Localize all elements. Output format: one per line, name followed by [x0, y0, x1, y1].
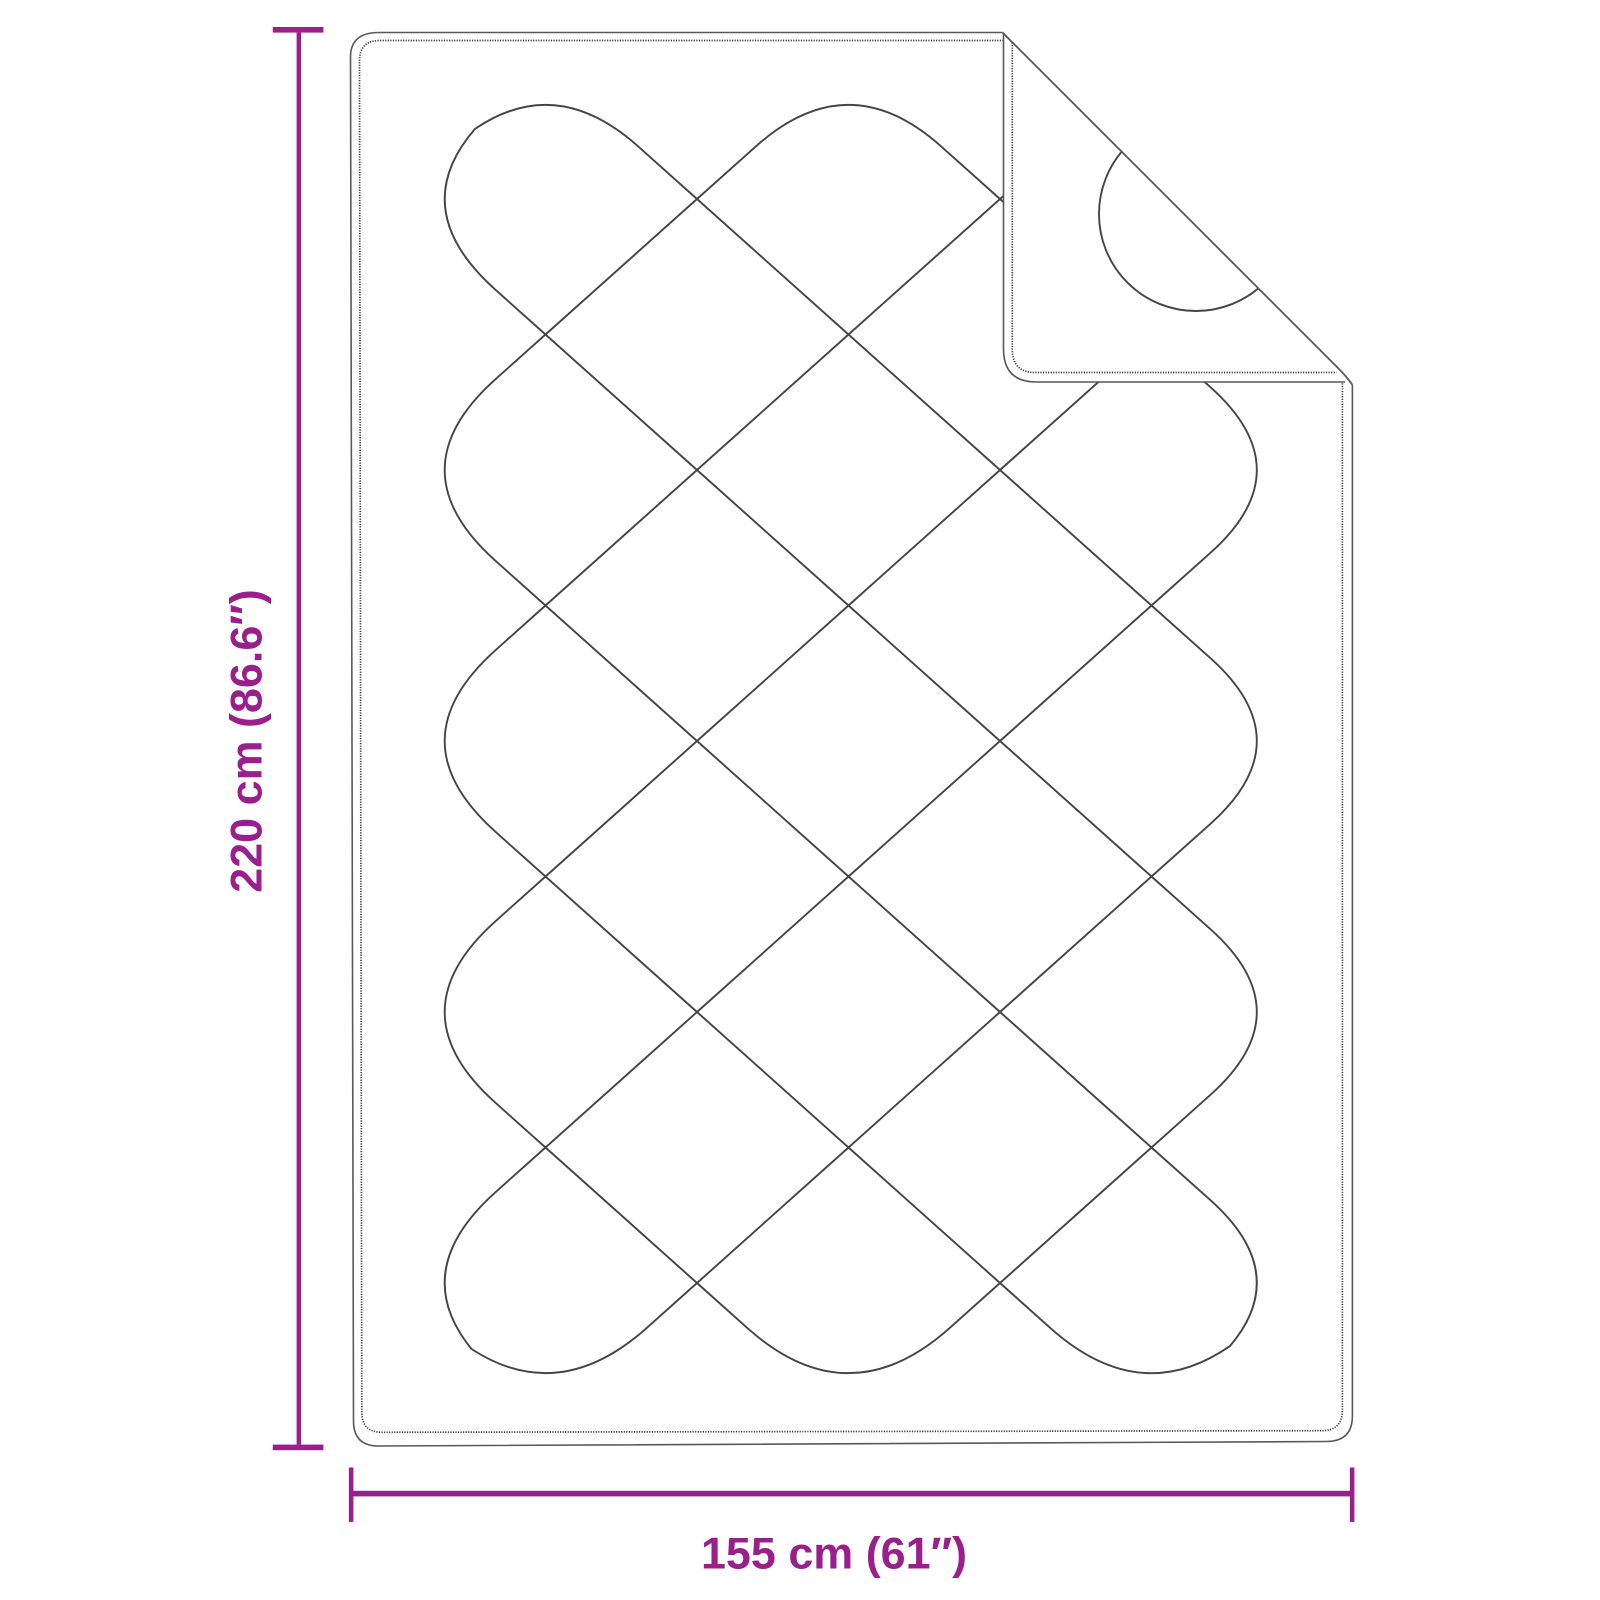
- svg-text:220 cm (86.6″): 220 cm (86.6″): [220, 589, 271, 893]
- svg-text:155 cm (61″): 155 cm (61″): [701, 1528, 967, 1579]
